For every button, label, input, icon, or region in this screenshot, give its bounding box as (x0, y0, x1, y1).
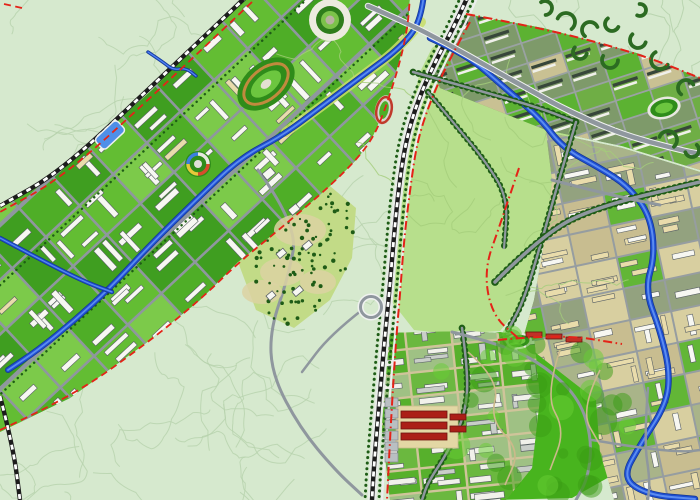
canopy-blob (502, 326, 522, 346)
tree-dot (258, 250, 262, 254)
tree-dot (345, 226, 348, 229)
tree-dot (297, 300, 301, 304)
building (401, 411, 447, 418)
tree-dot (282, 290, 286, 294)
tree-dot (325, 203, 328, 206)
canopy-blob (556, 382, 570, 396)
canopy-blob (524, 363, 537, 376)
tree-dot (280, 301, 284, 305)
building (385, 453, 398, 462)
tree-dot (255, 265, 258, 268)
canopy-blob (478, 443, 493, 458)
building (469, 449, 476, 461)
tree-dot (329, 233, 332, 236)
tree-dot (331, 259, 335, 263)
tree-dot (325, 238, 328, 241)
tree-dot (273, 317, 276, 320)
tree-dot (268, 282, 271, 285)
master-plan-map-stage (0, 0, 700, 500)
tree-dot (345, 210, 347, 212)
tree-dot (276, 290, 278, 292)
tree-dot (298, 258, 301, 261)
tree-dot (307, 252, 309, 254)
tree-dot (315, 236, 317, 238)
tree-dot (284, 228, 287, 231)
tree-dot (311, 265, 314, 268)
tree-dot (311, 237, 315, 241)
tree-dot (339, 269, 342, 272)
tree-dot (270, 247, 274, 251)
tree-dot (330, 229, 333, 232)
soil-patch (242, 280, 282, 304)
tree-dot (299, 218, 301, 220)
canopy-blob (502, 342, 526, 366)
tree-dot (351, 230, 355, 234)
canopy-blob (433, 363, 450, 380)
building (385, 442, 398, 451)
tree-dot (293, 273, 296, 276)
tree-dot (346, 217, 349, 220)
tree-dot (312, 267, 316, 271)
tree-dot (260, 256, 263, 259)
tree-dot (292, 223, 296, 227)
soil-patch (300, 270, 336, 294)
tree-dot (314, 309, 317, 312)
tree-dot (311, 283, 315, 287)
tree-dot (310, 272, 313, 275)
canopy-blob (497, 466, 522, 491)
tree-dot (328, 223, 331, 226)
tree-dot (283, 317, 286, 320)
canopy-blob (480, 349, 495, 364)
urban-master-plan-map (0, 0, 700, 500)
building (401, 422, 447, 429)
tree-dot (318, 299, 321, 302)
tree-dot (323, 265, 327, 269)
canopy-blob (590, 407, 618, 435)
tree-dot (290, 300, 294, 304)
tree-dot (319, 254, 321, 256)
tree-dot (319, 206, 323, 210)
tree-dot (330, 206, 332, 208)
tree-dot (344, 267, 347, 270)
tree-dot (304, 220, 308, 224)
tree-dot (312, 253, 316, 257)
tree-dot (313, 305, 316, 308)
tree-dot (292, 257, 296, 261)
ring (326, 16, 335, 25)
tree-dot (305, 229, 309, 233)
canopy-blob (558, 448, 568, 458)
tree-dot (294, 301, 297, 304)
tree-dot (333, 252, 335, 254)
multicolor-arena (185, 151, 211, 177)
tree-dot (346, 202, 350, 206)
building (450, 414, 466, 420)
tree-dot (296, 316, 300, 320)
building (450, 426, 466, 432)
circular-plaza-rings (309, 0, 351, 41)
canopy-blob (578, 475, 599, 496)
tree-dot (301, 299, 304, 302)
tree-dot (318, 243, 322, 247)
canopy-blob (526, 372, 552, 398)
building (385, 431, 398, 440)
canopy-blob (619, 417, 636, 434)
tree-dot (290, 247, 294, 251)
tree-dot (311, 259, 314, 262)
tree-dot (327, 195, 330, 198)
tree-dot (307, 223, 311, 227)
tree-dot (273, 265, 275, 267)
canopy-blob (613, 393, 632, 412)
tree-dot (285, 322, 289, 326)
canopy-blob (528, 394, 547, 413)
canopy-blob (538, 475, 559, 496)
tree-dot (289, 273, 292, 276)
canopy-blob (529, 415, 552, 438)
tree-dot (330, 201, 334, 205)
tree-dot (301, 269, 304, 272)
canopy-blob (464, 393, 479, 408)
tree-dot (287, 254, 290, 257)
circular-plaza (309, 0, 351, 41)
tree-dot (329, 193, 332, 196)
tree-dot (298, 252, 302, 256)
tree-dot (300, 236, 304, 240)
tree-dot (254, 280, 258, 284)
tree-dot (283, 265, 286, 268)
building (401, 433, 447, 440)
canopy-blob (577, 446, 595, 464)
tree-dot (255, 256, 259, 260)
tree-dot (336, 209, 339, 212)
arena-core (194, 160, 202, 168)
tree-dot (268, 311, 271, 314)
tree-dot (319, 284, 323, 288)
